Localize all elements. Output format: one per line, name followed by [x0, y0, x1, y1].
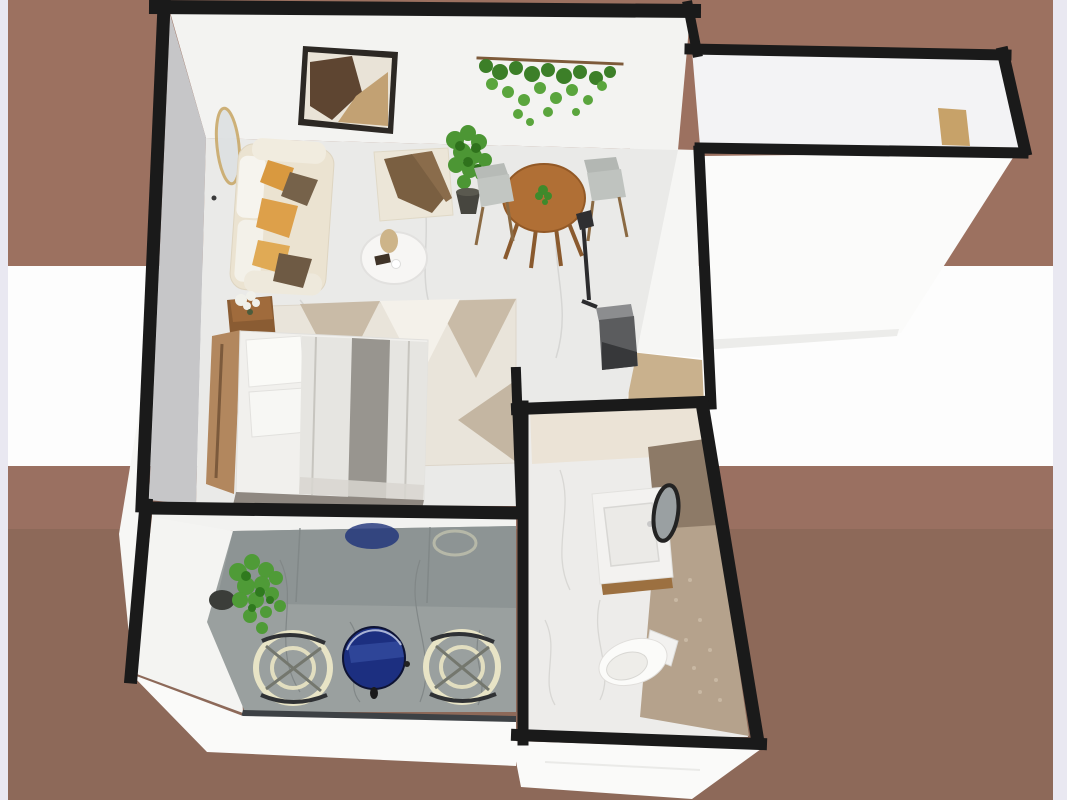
bg-right-strip: [1053, 0, 1067, 800]
wall-balcony-top: [148, 508, 520, 513]
wall-entry-top: [690, 49, 1006, 55]
wall-bathroom-top: [517, 402, 703, 409]
wall-hook-dot: [212, 196, 217, 201]
blue-table-item-2: [404, 661, 410, 667]
bed-pillow-1: [246, 336, 304, 387]
nightstand-flower-stem: [247, 309, 253, 315]
blue-table-item-1: [370, 687, 378, 699]
entry-hall-floor: [692, 50, 1020, 148]
vanity-sink-basin: [604, 503, 659, 566]
wall-entry-bottom: [700, 148, 1023, 153]
dining-chair-right-seat: [587, 169, 626, 201]
dining-table-top: [503, 164, 585, 232]
bg-left-strip: [0, 0, 8, 800]
bed-pillow-2: [249, 388, 307, 437]
potted-plant-pot-rim: [456, 188, 480, 196]
floor-plan-render: [0, 0, 1067, 800]
bed-duvet-stripe: [348, 338, 390, 500]
balcony-plant-pot: [209, 590, 235, 610]
entry-door: [938, 108, 970, 146]
reflection-blue-table: [345, 523, 399, 549]
floor-plan-svg: [0, 0, 1067, 800]
coffee-table-vase: [380, 229, 398, 253]
coffee-table-cup: [392, 260, 401, 269]
wall-main-top: [156, 7, 694, 11]
living-wall-face-top: [170, 12, 690, 150]
